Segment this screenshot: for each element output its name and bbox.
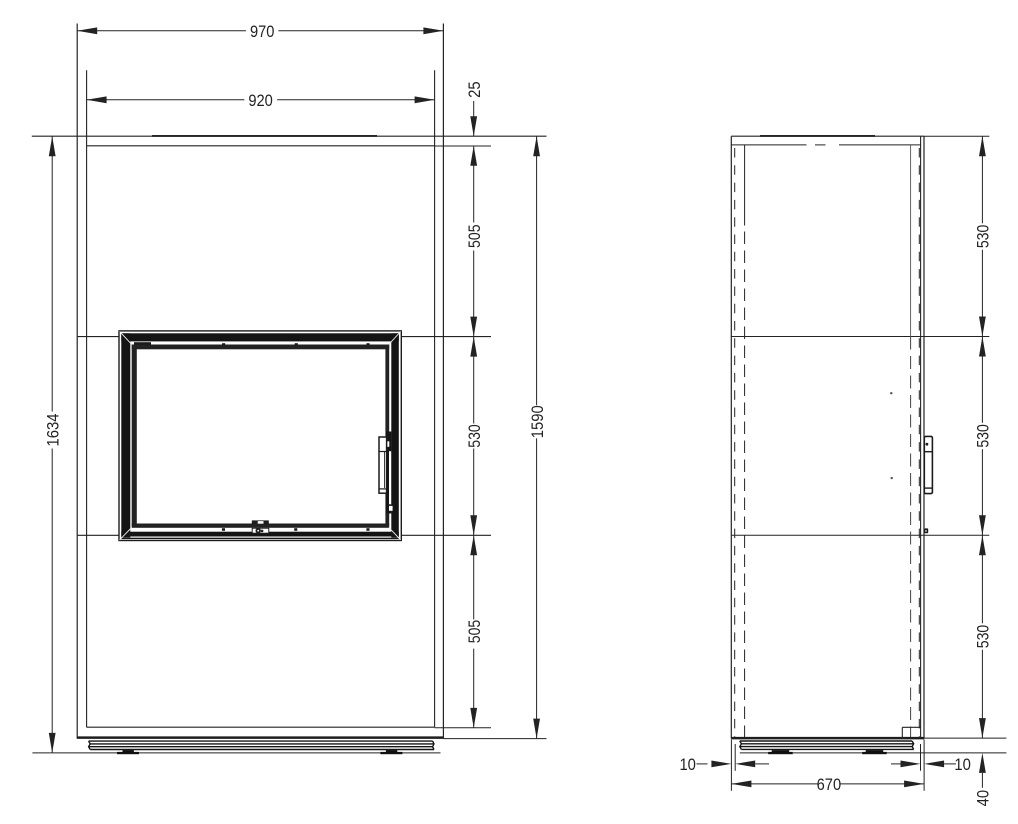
svg-text:505: 505 [465,620,484,644]
svg-text:25: 25 [465,81,484,98]
svg-text:1590: 1590 [528,405,547,438]
svg-text:530: 530 [974,424,993,448]
svg-text:670: 670 [817,775,842,794]
svg-text:1634: 1634 [43,414,62,447]
svg-text:505: 505 [465,224,484,248]
svg-text:530: 530 [465,424,484,448]
svg-text:920: 920 [248,91,273,110]
svg-text:970: 970 [250,22,275,41]
svg-text:10: 10 [679,755,696,774]
svg-text:40: 40 [974,790,993,807]
svg-text:530: 530 [974,225,993,249]
svg-text:530: 530 [974,625,993,649]
svg-text:10: 10 [954,755,971,774]
